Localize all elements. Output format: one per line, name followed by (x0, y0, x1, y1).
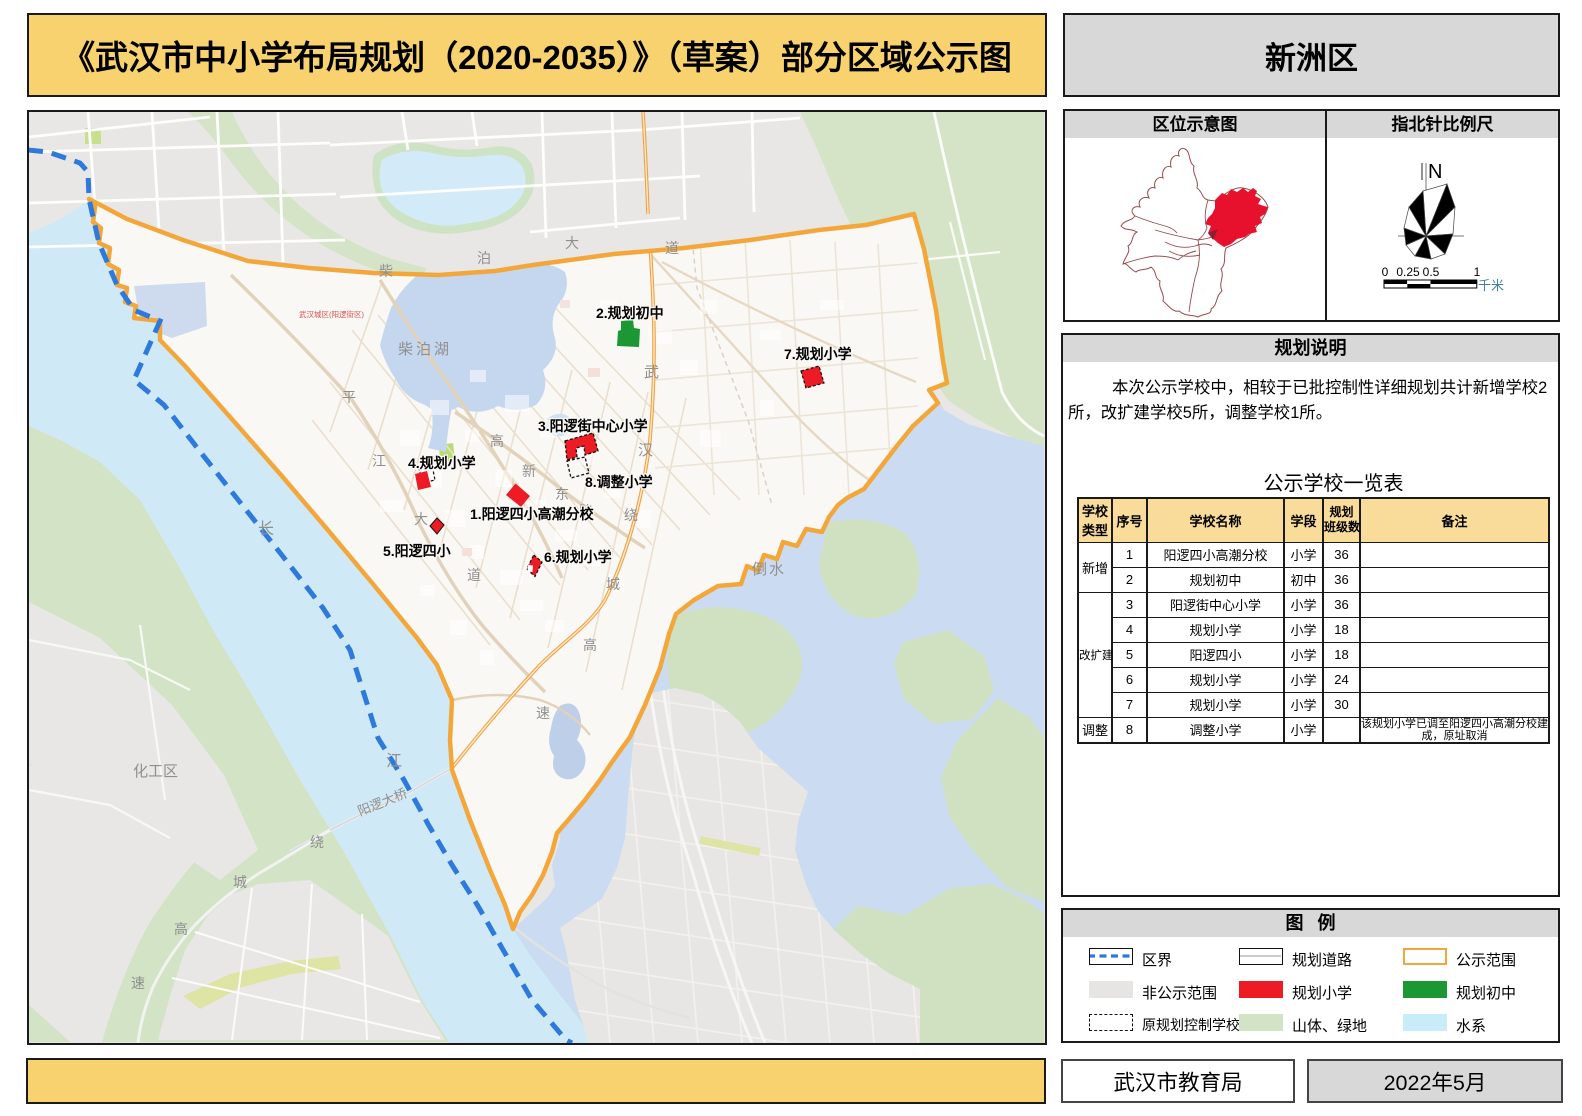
svg-text:高: 高 (583, 637, 597, 653)
svg-text:6.规划小学: 6.规划小学 (544, 549, 612, 565)
svg-text:1.阳逻四小高潮分校: 1.阳逻四小高潮分校 (470, 506, 595, 522)
svg-text:江: 江 (386, 752, 402, 770)
svg-text:大: 大 (414, 511, 428, 527)
svg-text:东: 东 (555, 486, 569, 502)
svg-text:0: 0 (1382, 265, 1389, 279)
svg-text:5.阳逻四小: 5.阳逻四小 (383, 543, 451, 559)
svg-text:0.5: 0.5 (1423, 265, 1440, 279)
svg-text:8.调整小学: 8.调整小学 (585, 474, 653, 490)
svg-text:平: 平 (342, 389, 356, 405)
svg-text:汉: 汉 (638, 442, 653, 459)
svg-text:化工区: 化工区 (133, 763, 178, 780)
svg-text:N: N (1428, 161, 1442, 183)
svg-text:3.阳逻街中心小学: 3.阳逻街中心小学 (538, 418, 648, 434)
svg-text:绕: 绕 (624, 507, 638, 523)
svg-text:泊: 泊 (477, 250, 491, 266)
svg-text:柴泊湖: 柴泊湖 (398, 341, 452, 358)
svg-text:城: 城 (606, 576, 620, 592)
svg-text:大: 大 (565, 235, 579, 251)
svg-text:绕: 绕 (310, 834, 324, 850)
svg-text:2.规划初中: 2.规划初中 (596, 305, 664, 321)
svg-text:7.规划小学: 7.规划小学 (784, 346, 852, 362)
svg-text:倒水: 倒水 (752, 561, 786, 578)
svg-text:柴: 柴 (379, 263, 393, 279)
svg-text:武汉城区(阳逻街区): 武汉城区(阳逻街区) (299, 309, 364, 319)
svg-text:道: 道 (665, 240, 679, 256)
svg-text:1: 1 (1474, 265, 1481, 279)
svg-text:城: 城 (233, 874, 247, 890)
svg-text:新: 新 (522, 463, 536, 479)
svg-text:速: 速 (536, 705, 550, 721)
svg-text:速: 速 (131, 975, 145, 991)
svg-text:长: 长 (258, 520, 274, 538)
svg-text:千米: 千米 (1478, 278, 1504, 293)
svg-text:江: 江 (372, 453, 386, 469)
svg-text:4.规划小学: 4.规划小学 (408, 455, 476, 471)
svg-text:武: 武 (644, 364, 659, 381)
svg-text:高: 高 (174, 921, 188, 937)
svg-text:高: 高 (490, 433, 504, 449)
svg-text:道: 道 (467, 567, 481, 583)
svg-text:0.25: 0.25 (1396, 265, 1420, 279)
